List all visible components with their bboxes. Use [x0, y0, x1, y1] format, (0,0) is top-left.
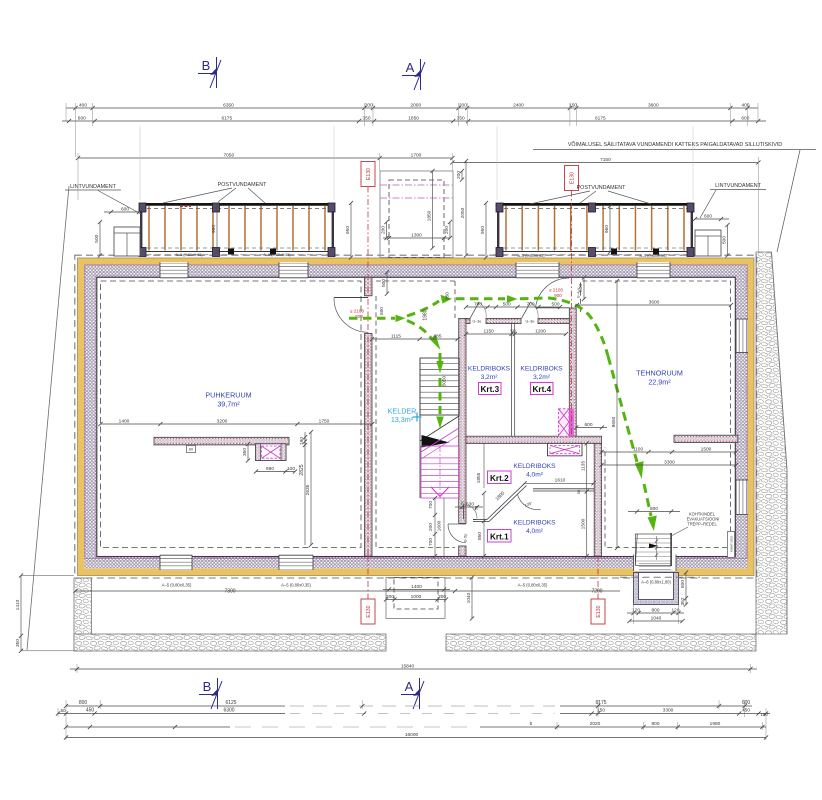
- svg-text:B: B: [203, 679, 212, 694]
- svg-text:LINTVUNDAMENT: LINTVUNDAMENT: [70, 184, 117, 190]
- svg-text:900: 900: [554, 293, 562, 298]
- svg-text:U–3e: U–3e: [472, 319, 481, 323]
- svg-text:6175: 6175: [595, 700, 606, 706]
- svg-text:A: A: [406, 60, 415, 75]
- svg-text:2020: 2020: [590, 721, 601, 727]
- svg-text:E130: E130: [366, 168, 372, 180]
- svg-text:800: 800: [651, 607, 659, 613]
- svg-text:LINTVUNDAMENT: LINTVUNDAMENT: [715, 183, 762, 189]
- svg-text:1850: 1850: [427, 210, 433, 221]
- svg-text:885: 885: [433, 333, 441, 339]
- svg-text:4,0m²: 4,0m²: [526, 472, 544, 479]
- svg-text:50: 50: [475, 506, 479, 510]
- svg-text:E130: E130: [366, 605, 372, 617]
- svg-text:2400: 2400: [513, 102, 524, 108]
- svg-text:1135: 1135: [581, 461, 587, 472]
- svg-text:200: 200: [381, 226, 387, 234]
- svg-text:1200: 1200: [535, 328, 546, 334]
- svg-text:KINNITUSED: KINNITUSED: [730, 536, 734, 552]
- svg-text:7050: 7050: [223, 152, 234, 158]
- svg-text:800: 800: [651, 721, 659, 727]
- svg-text:6300: 6300: [223, 708, 234, 714]
- svg-text:6175: 6175: [595, 115, 606, 121]
- svg-text:39,7m²: 39,7m²: [217, 400, 240, 409]
- svg-text:2825: 2825: [299, 464, 305, 475]
- svg-text:E130: E130: [570, 172, 576, 184]
- svg-text:1700: 1700: [411, 152, 422, 158]
- svg-text:400: 400: [79, 102, 87, 108]
- svg-text:KELDRIBOKS: KELDRIBOKS: [513, 463, 556, 470]
- svg-text:600: 600: [742, 700, 751, 706]
- svg-text:600: 600: [741, 115, 749, 121]
- svg-text:A–5 (0,80x0,35): A–5 (0,80x0,35): [281, 583, 311, 588]
- svg-text:600: 600: [121, 206, 129, 212]
- svg-text:60: 60: [189, 448, 193, 452]
- svg-text:500: 500: [381, 279, 387, 287]
- svg-text:200: 200: [386, 594, 394, 600]
- svg-text:960: 960: [211, 225, 217, 233]
- svg-text:700: 700: [526, 301, 534, 307]
- svg-text:200: 200: [365, 102, 373, 108]
- svg-text:352: 352: [680, 597, 686, 605]
- svg-text:15840: 15840: [401, 663, 415, 669]
- svg-text:POSTVUNDAMENT: POSTVUNDAMENT: [218, 182, 268, 188]
- svg-text:1850: 1850: [408, 115, 419, 121]
- svg-text:1610: 1610: [555, 478, 566, 484]
- svg-text:B: B: [202, 58, 211, 73]
- svg-text:350: 350: [15, 639, 21, 647]
- svg-text:700: 700: [428, 538, 434, 546]
- svg-text:500: 500: [503, 301, 511, 307]
- svg-text:≥ 2100: ≥ 2100: [350, 309, 364, 314]
- svg-text:A–6 (0,80x1,00): A–6 (0,80x1,00): [641, 580, 671, 585]
- svg-text:7200: 7200: [591, 589, 602, 595]
- svg-text:50: 50: [60, 708, 66, 713]
- svg-text:850: 850: [477, 532, 483, 540]
- svg-text:5050: 5050: [442, 375, 447, 386]
- svg-text:6125: 6125: [225, 700, 236, 706]
- svg-text:2635: 2635: [305, 484, 311, 495]
- svg-text:A–5 (0,80x0,35): A–5 (0,80x0,35): [162, 583, 192, 588]
- svg-text:630: 630: [466, 501, 474, 507]
- svg-text:A–5 (0,80x0,35): A–5 (0,80x0,35): [175, 253, 203, 257]
- svg-text:2050: 2050: [460, 207, 466, 218]
- svg-text:Krt.1: Krt.1: [490, 532, 509, 541]
- svg-text:U–5p: U–5p: [464, 534, 468, 543]
- svg-text:200: 200: [444, 226, 450, 234]
- svg-text:E130: E130: [596, 605, 602, 617]
- svg-text:1600: 1600: [437, 520, 443, 531]
- svg-text:3300: 3300: [663, 708, 674, 714]
- svg-text:A–5 (0,80x0,35): A–5 (0,80x0,35): [517, 254, 545, 258]
- svg-text:450: 450: [742, 708, 750, 714]
- svg-text:700: 700: [428, 501, 434, 509]
- svg-text:1980: 1980: [423, 309, 429, 320]
- svg-text:1150: 1150: [484, 328, 495, 334]
- svg-text:3300: 3300: [664, 459, 675, 465]
- svg-text:1300: 1300: [411, 232, 422, 238]
- svg-text:3,2m²: 3,2m²: [533, 374, 551, 381]
- svg-text:3600: 3600: [649, 299, 660, 305]
- svg-text:A–5 (0,80x0,35): A–5 (0,80x0,35): [263, 253, 291, 257]
- svg-text:50: 50: [510, 328, 516, 334]
- svg-text:450: 450: [86, 708, 95, 714]
- svg-text:≥ 2100: ≥ 2100: [549, 288, 563, 293]
- svg-text:POSTVUNDAMENT: POSTVUNDAMENT: [577, 185, 627, 191]
- svg-text:120: 120: [632, 607, 640, 613]
- svg-text:800: 800: [379, 307, 384, 315]
- svg-text:KELDRIBOKS: KELDRIBOKS: [513, 520, 556, 527]
- svg-text:150: 150: [597, 708, 605, 714]
- svg-text:690: 690: [266, 466, 274, 472]
- svg-text:1750: 1750: [319, 418, 330, 424]
- svg-text:1400: 1400: [119, 418, 130, 424]
- svg-text:200: 200: [438, 594, 446, 600]
- svg-text:KELDRIBOKS: KELDRIBOKS: [468, 366, 511, 373]
- svg-text:400: 400: [741, 102, 749, 108]
- svg-text:1855: 1855: [476, 472, 482, 483]
- svg-text:A–5 (0,80x0,35): A–5 (0,80x0,35): [518, 583, 548, 588]
- svg-text:150: 150: [760, 712, 768, 717]
- svg-text:1000: 1000: [411, 594, 422, 600]
- svg-text:8650: 8650: [611, 416, 617, 427]
- svg-text:100: 100: [287, 466, 295, 472]
- svg-text:6175: 6175: [221, 115, 232, 121]
- svg-text:600: 600: [584, 422, 592, 428]
- svg-text:VÕIMALUSEL SÄILITATAVA VUNDA: VÕIMALUSEL SÄILITATAVA VUNDAMENDI KATTEK…: [568, 141, 782, 148]
- svg-text:b: b: [530, 721, 533, 727]
- svg-text:350: 350: [457, 115, 465, 121]
- svg-text:1500: 1500: [701, 446, 712, 452]
- svg-text:190: 190: [299, 437, 305, 445]
- svg-text:6350: 6350: [223, 102, 234, 108]
- svg-text:KELDRIBOKS: KELDRIBOKS: [520, 366, 563, 373]
- svg-text:960: 960: [604, 225, 610, 233]
- svg-text:950: 950: [445, 292, 450, 300]
- svg-text:800: 800: [79, 700, 88, 706]
- svg-text:200: 200: [456, 171, 462, 179]
- svg-text:1500: 1500: [581, 518, 587, 529]
- svg-text:3,2m²: 3,2m²: [481, 374, 499, 381]
- svg-text:500: 500: [94, 234, 100, 242]
- svg-text:Krt.4: Krt.4: [532, 385, 551, 394]
- svg-text:TEHNORUUM: TEHNORUUM: [636, 369, 683, 378]
- svg-text:U–3e: U–3e: [525, 319, 534, 323]
- svg-text:TREPP–REDEL: TREPP–REDEL: [687, 522, 717, 527]
- svg-text:1980: 1980: [710, 721, 721, 727]
- svg-text:50: 50: [577, 490, 581, 494]
- svg-text:600: 600: [680, 580, 686, 588]
- svg-text:3200: 3200: [217, 418, 228, 424]
- svg-text:3600: 3600: [648, 102, 659, 108]
- svg-text:A: A: [405, 679, 414, 694]
- svg-text:950: 950: [345, 226, 351, 234]
- svg-text:1040: 1040: [466, 592, 472, 603]
- svg-text:4,0m²: 4,0m²: [526, 528, 544, 535]
- svg-text:950: 950: [480, 226, 486, 234]
- svg-text:7300: 7300: [224, 589, 235, 595]
- svg-text:1410: 1410: [15, 599, 21, 610]
- svg-text:1400: 1400: [411, 584, 422, 590]
- svg-text:1115: 1115: [391, 333, 401, 339]
- svg-text:800: 800: [650, 506, 658, 512]
- svg-text:16000: 16000: [405, 732, 419, 738]
- svg-text:A–5 (0,80x0,35): A–5 (0,80x0,35): [639, 254, 667, 258]
- svg-text:22,9m²: 22,9m²: [648, 378, 671, 387]
- svg-text:500: 500: [578, 284, 584, 292]
- svg-text:Krt.2: Krt.2: [490, 474, 509, 483]
- svg-text:2000: 2000: [410, 102, 421, 108]
- svg-text:PUHKERUUM: PUHKERUUM: [205, 391, 251, 400]
- svg-text:700: 700: [474, 301, 482, 307]
- svg-text:1040: 1040: [651, 615, 662, 621]
- svg-text:200: 200: [428, 523, 434, 531]
- svg-text:1100: 1100: [633, 446, 644, 452]
- svg-text:200: 200: [459, 102, 467, 108]
- svg-text:600: 600: [78, 115, 86, 121]
- svg-text:600: 600: [704, 213, 712, 219]
- svg-text:13,3m²: 13,3m²: [391, 415, 414, 424]
- svg-text:350: 350: [362, 115, 370, 121]
- svg-text:350: 350: [242, 448, 248, 456]
- svg-text:7150: 7150: [600, 157, 611, 163]
- svg-text:500: 500: [722, 236, 728, 244]
- svg-text:500: 500: [551, 301, 559, 307]
- svg-text:Krt.3: Krt.3: [480, 385, 499, 394]
